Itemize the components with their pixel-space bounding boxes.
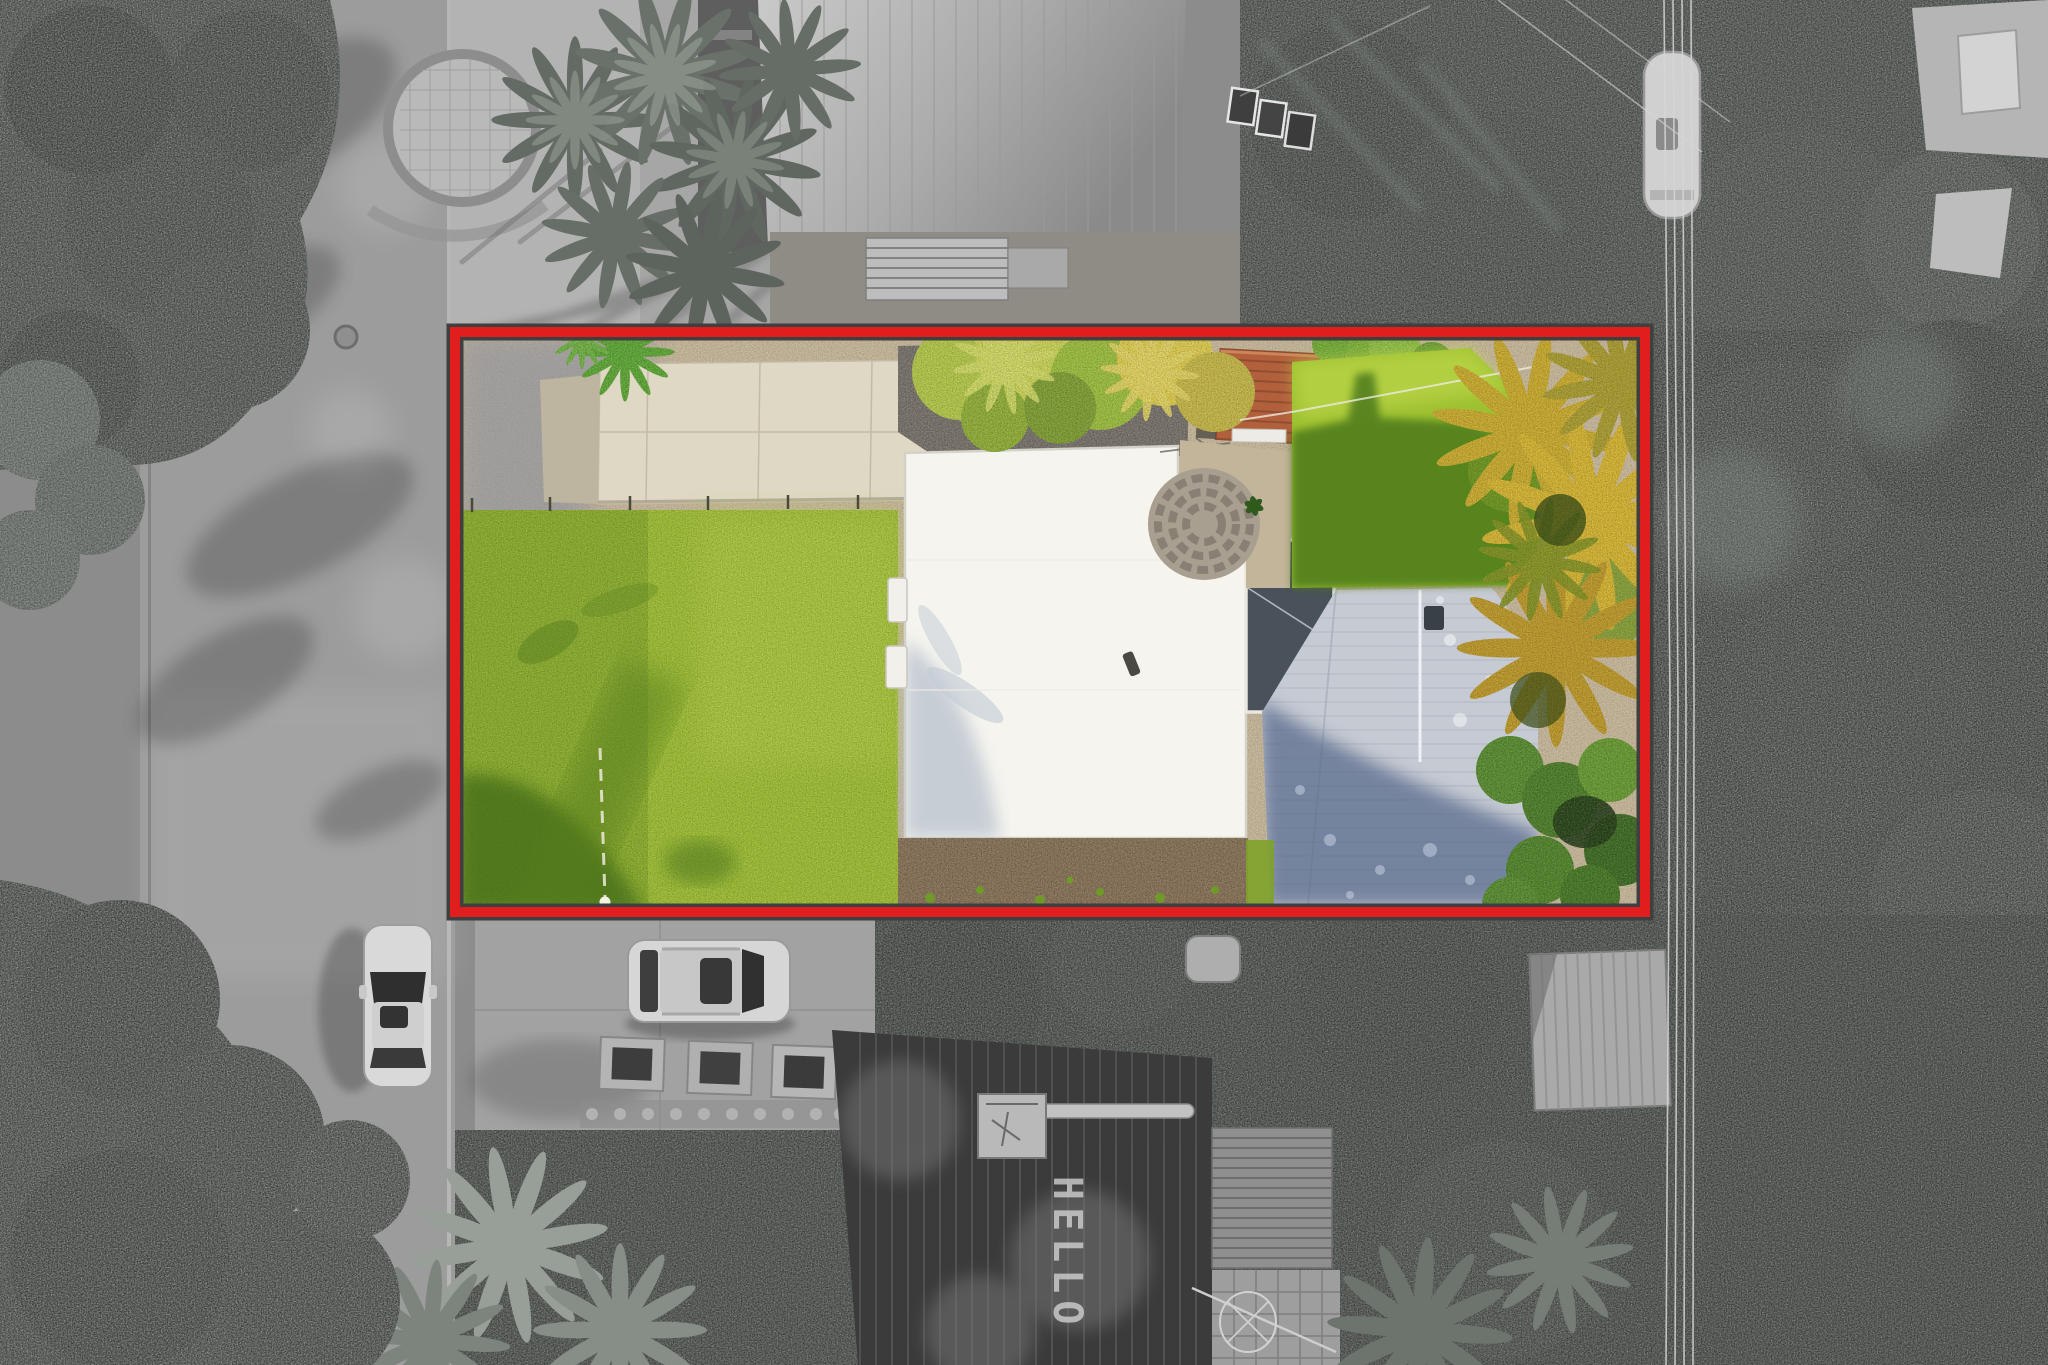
- tiled-patio: [1192, 1270, 1340, 1365]
- sedan-sunroof: [380, 1006, 408, 1028]
- property-lot: [455, 268, 1749, 951]
- gray-shed: [1529, 950, 1670, 1111]
- storage-tank: [1186, 936, 1240, 982]
- sedan-windshield: [370, 972, 426, 1004]
- suv-rear-window: [640, 950, 658, 1012]
- planter-boxes: [599, 1037, 837, 1099]
- parked-suv: [625, 940, 795, 1040]
- corrugated-panel: [1212, 1128, 1332, 1268]
- shingle-roof-vent: [1424, 606, 1444, 630]
- aerial-photo-canvas: HELLO: [0, 0, 2048, 1365]
- roof-equipment-box: [978, 1094, 1046, 1158]
- roof-text-hello: HELLO: [1044, 1176, 1090, 1331]
- sedan-rear-window: [370, 1048, 426, 1068]
- suv-windshield: [742, 949, 764, 1013]
- manhole-cover: [335, 326, 357, 348]
- parked-sedan: [318, 925, 437, 1092]
- chimney-left-2: [886, 646, 907, 688]
- white-wall-strip: [1232, 429, 1286, 443]
- paver-walkway: [580, 1100, 850, 1128]
- aerial-photo: HELLO: [0, 0, 2048, 1365]
- chimney-left-1: [888, 578, 907, 622]
- concrete-driveway: [540, 360, 950, 504]
